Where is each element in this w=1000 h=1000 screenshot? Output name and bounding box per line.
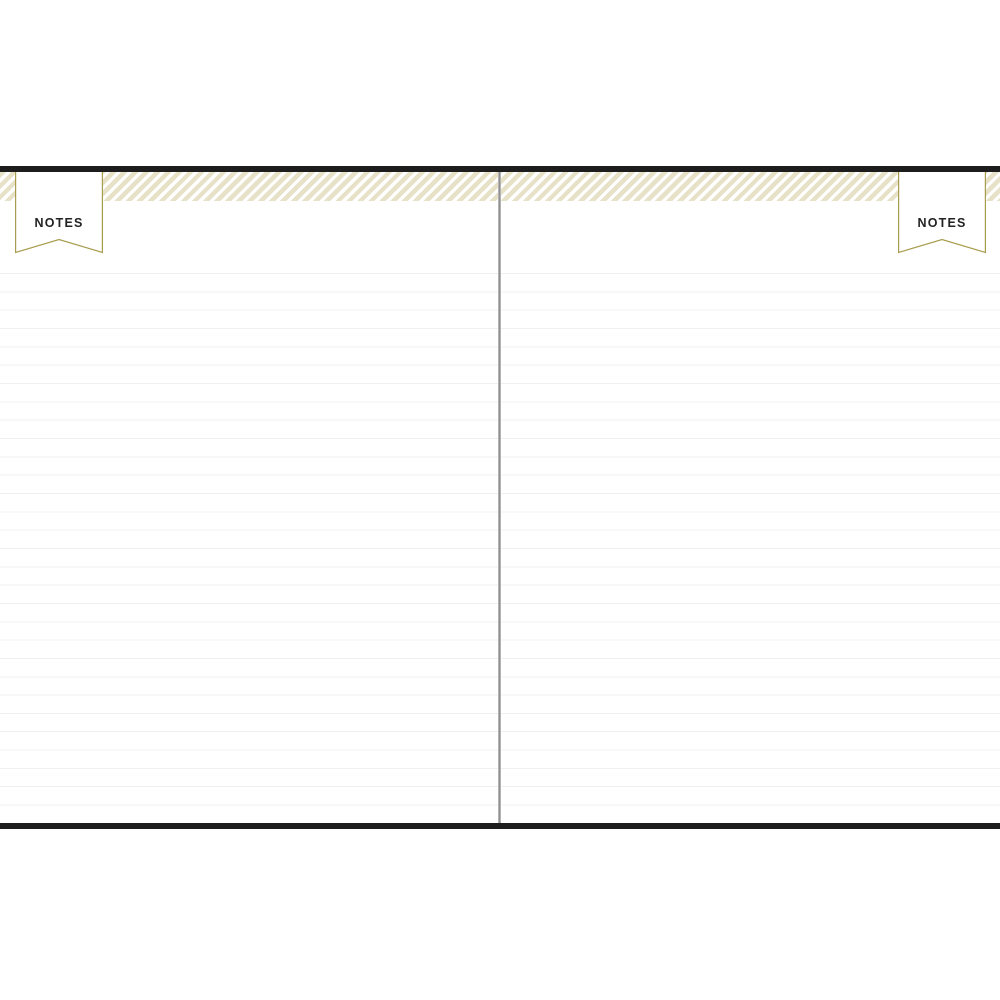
bottom-cover-edge: [0, 823, 1000, 829]
ribbon-banner-icon: [898, 171, 986, 254]
notebook-product-image: NOTES NOTES: [0, 0, 1000, 1000]
ribbon-banner-icon: [15, 171, 103, 254]
right-notes-label: NOTES: [898, 216, 986, 230]
left-notes-banner: NOTES: [15, 171, 103, 254]
top-cover-edge: [0, 166, 1000, 172]
page-gutter-divider: [498, 172, 501, 823]
left-notes-label: NOTES: [15, 216, 103, 230]
notebook-spread: NOTES NOTES: [0, 0, 1000, 1000]
right-notes-banner: NOTES: [898, 171, 986, 254]
